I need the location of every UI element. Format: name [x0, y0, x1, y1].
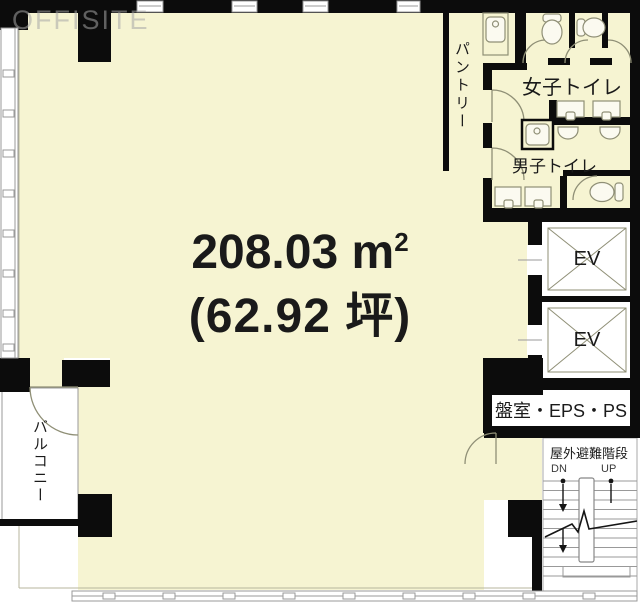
area-unit: m — [352, 226, 395, 279]
urinal-icon — [600, 127, 620, 139]
room-label-mens-toilet: 男子トイレ — [512, 152, 597, 177]
urinal-icon — [558, 127, 578, 139]
sink-unit-icon — [522, 120, 553, 149]
sink-icon — [557, 101, 584, 120]
sink-icon — [525, 187, 551, 208]
area-square-meters: 208.03 m2 — [110, 224, 490, 282]
room-label-pantry: パントリー — [451, 41, 472, 131]
watermark: OFFISITE — [12, 5, 150, 36]
column — [78, 494, 112, 537]
column — [508, 500, 542, 537]
floor-plan: OFFISITE 208.03 m2 (62.92 坪) パントリー 女子トイレ… — [0, 0, 640, 602]
toilet-icon — [590, 183, 623, 202]
window-bottom — [72, 591, 637, 601]
area-tsubo: (62.92 坪) — [110, 288, 490, 346]
stairs-down-label: DN — [551, 463, 567, 475]
pantry-sink-icon — [483, 13, 508, 55]
room-label-outdoor-stairs: 屋外避難階段 — [541, 443, 637, 462]
area-value: 208.03 — [191, 226, 338, 279]
toilet-icon — [542, 14, 562, 44]
room-label-utility: 盤室・EPS・PS — [488, 397, 634, 423]
area-unit-sup: 2 — [394, 227, 408, 257]
sink-icon — [495, 187, 521, 208]
room-label-elevator-2: EV — [542, 329, 632, 351]
area-label: 208.03 m2 (62.92 坪) — [110, 224, 490, 346]
stairs-up-label: UP — [601, 463, 616, 475]
window-left — [1, 28, 18, 358]
toilet-icon — [577, 18, 605, 37]
room-label-elevator-1: EV — [542, 248, 632, 270]
room-label-balcony: バルコニー — [29, 419, 50, 504]
sink-icon — [593, 101, 620, 120]
room-label-womens-toilet: 女子トイレ — [522, 71, 622, 100]
